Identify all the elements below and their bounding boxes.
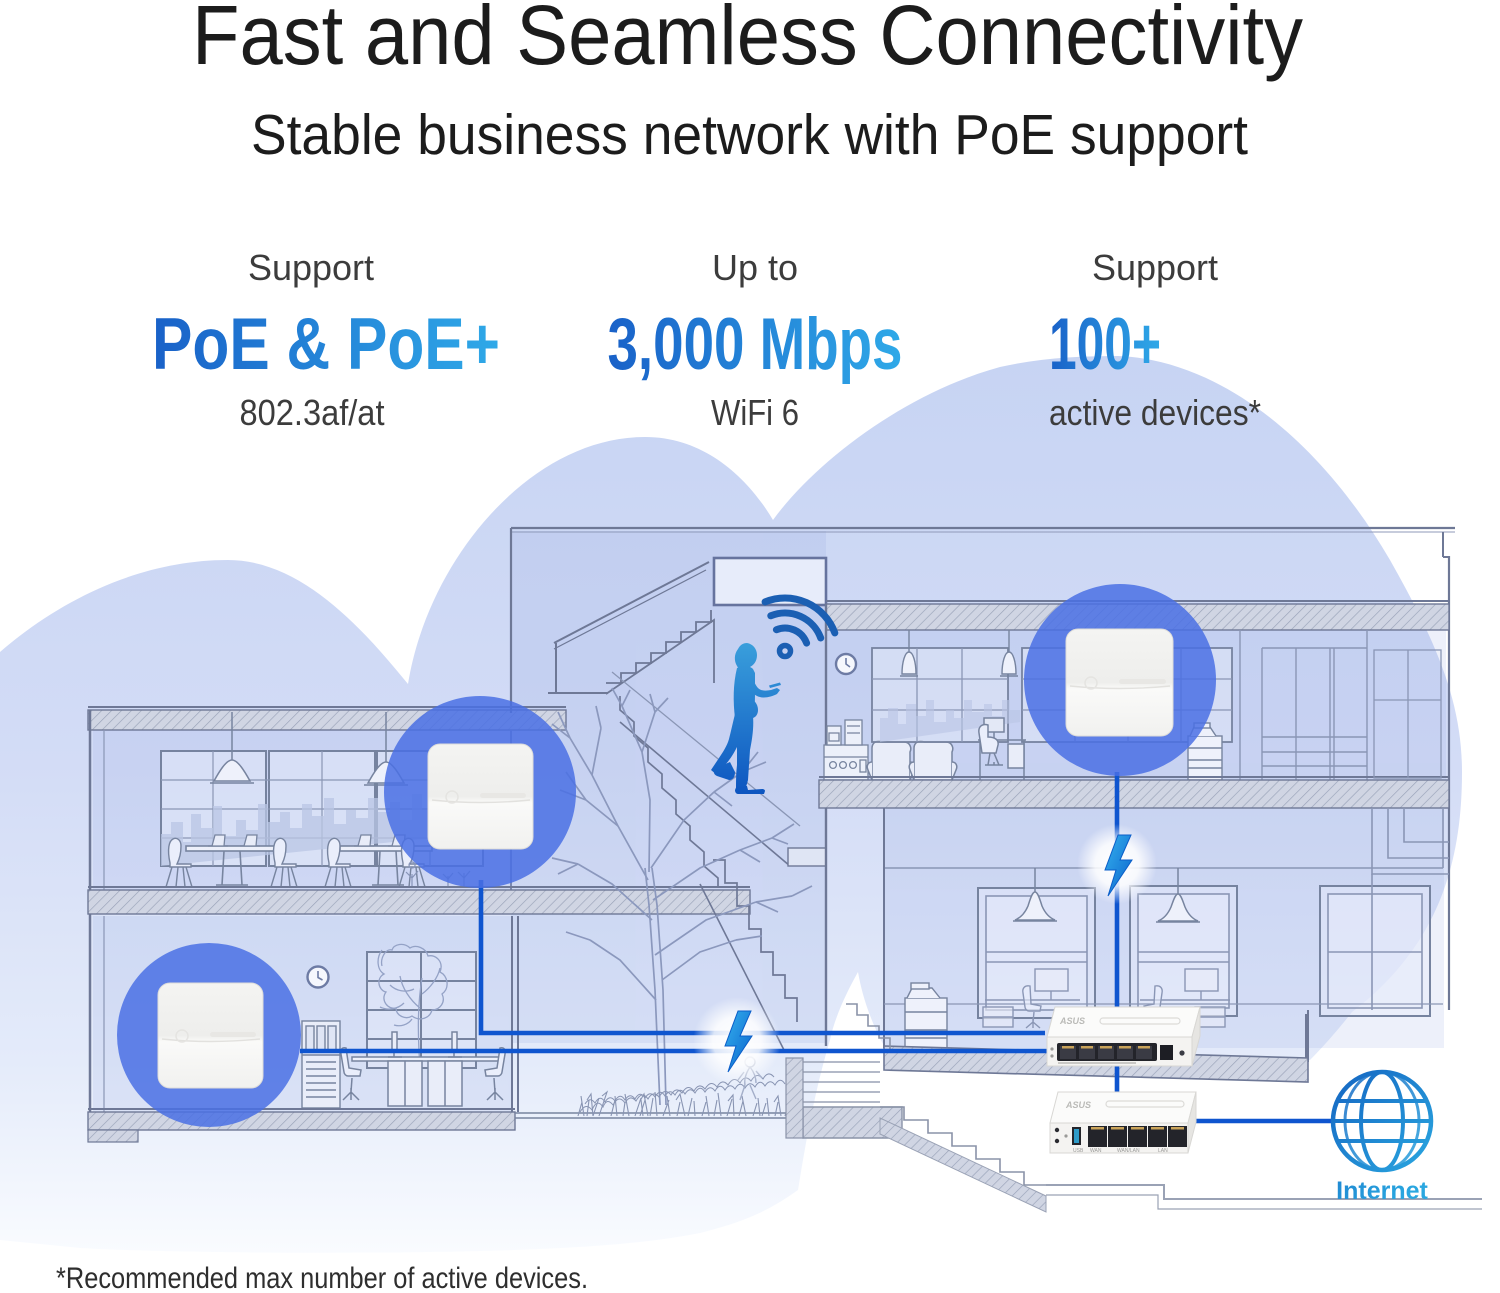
- svg-text:802.3af/at: 802.3af/at: [240, 392, 385, 433]
- svg-text:Internet: Internet: [1336, 1177, 1428, 1205]
- svg-text:Support: Support: [1092, 247, 1218, 288]
- svg-text:ASUS: ASUS: [1059, 1016, 1085, 1026]
- svg-text:WAN/LAN: WAN/LAN: [1117, 1148, 1140, 1154]
- svg-text:3,000 Mbps: 3,000 Mbps: [608, 304, 903, 385]
- svg-text:Support: Support: [248, 247, 374, 288]
- svg-text:WiFi 6: WiFi 6: [711, 392, 799, 433]
- svg-text:100+: 100+: [1049, 304, 1161, 385]
- svg-text:*Recommended max number of act: *Recommended max number of active device…: [56, 1262, 588, 1293]
- svg-text:WAN: WAN: [1090, 1148, 1102, 1154]
- svg-text:Stable business network with P: Stable business network with PoE support: [251, 103, 1248, 167]
- svg-text:Up to: Up to: [712, 247, 798, 288]
- svg-text:PoE & PoE+: PoE & PoE+: [152, 304, 500, 385]
- svg-text:LAN: LAN: [1158, 1148, 1168, 1154]
- svg-text:USB: USB: [1073, 1148, 1084, 1154]
- svg-text:active devices*: active devices*: [1049, 392, 1261, 433]
- svg-text:ASUS: ASUS: [1065, 1100, 1091, 1110]
- svg-text:Fast and Seamless Connectivity: Fast and Seamless Connectivity: [192, 0, 1303, 82]
